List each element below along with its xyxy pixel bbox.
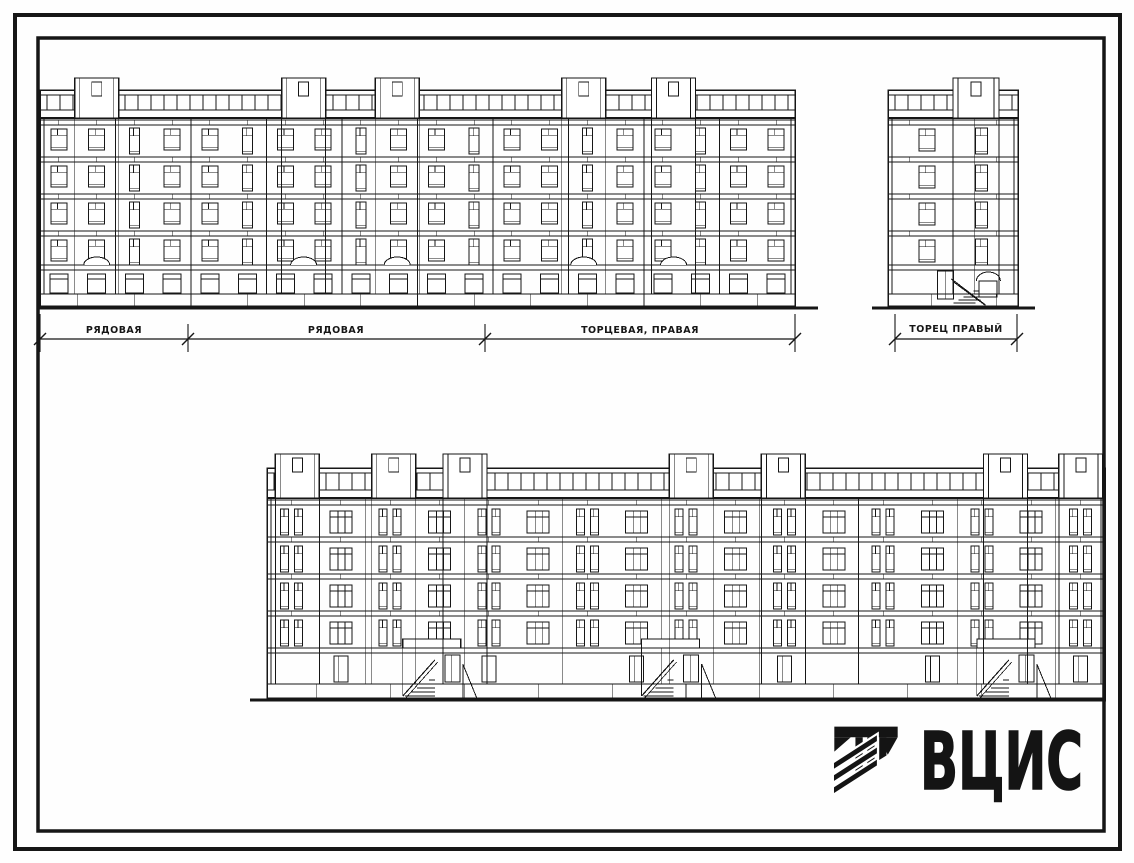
dimension-label-end: ТОРЕЦ ПРАВЫЙ (909, 323, 1002, 335)
dimension-label-segment2: РЯДОВАЯ (308, 325, 364, 336)
rear-elevation-drawing (250, 454, 1106, 700)
vcis-logo: ВЦИС (833, 716, 1083, 808)
blueprint-sheet: РЯДОВАЯ РЯДОВАЯ ТОРЦЕВАЯ, ПРАВАЯ ТОРЕЦ П… (0, 0, 1134, 863)
main-elevation-drawing (37, 78, 818, 308)
blueprint-svg: РЯДОВАЯ РЯДОВАЯ ТОРЦЕВАЯ, ПРАВАЯ ТОРЕЦ П… (0, 0, 1134, 863)
dimension-lines: РЯДОВАЯ РЯДОВАЯ ТОРЦЕВАЯ, ПРАВАЯ ТОРЕЦ П… (34, 314, 1023, 352)
end-elevation-drawing (872, 78, 1035, 308)
vcis-emblem-icon (833, 727, 898, 795)
dimension-label-segment1: РЯДОВАЯ (86, 325, 142, 336)
dimension-label-segment3: ТОРЦЕВАЯ, ПРАВАЯ (581, 325, 699, 336)
vcis-logo-text: ВЦИС (920, 716, 1083, 808)
